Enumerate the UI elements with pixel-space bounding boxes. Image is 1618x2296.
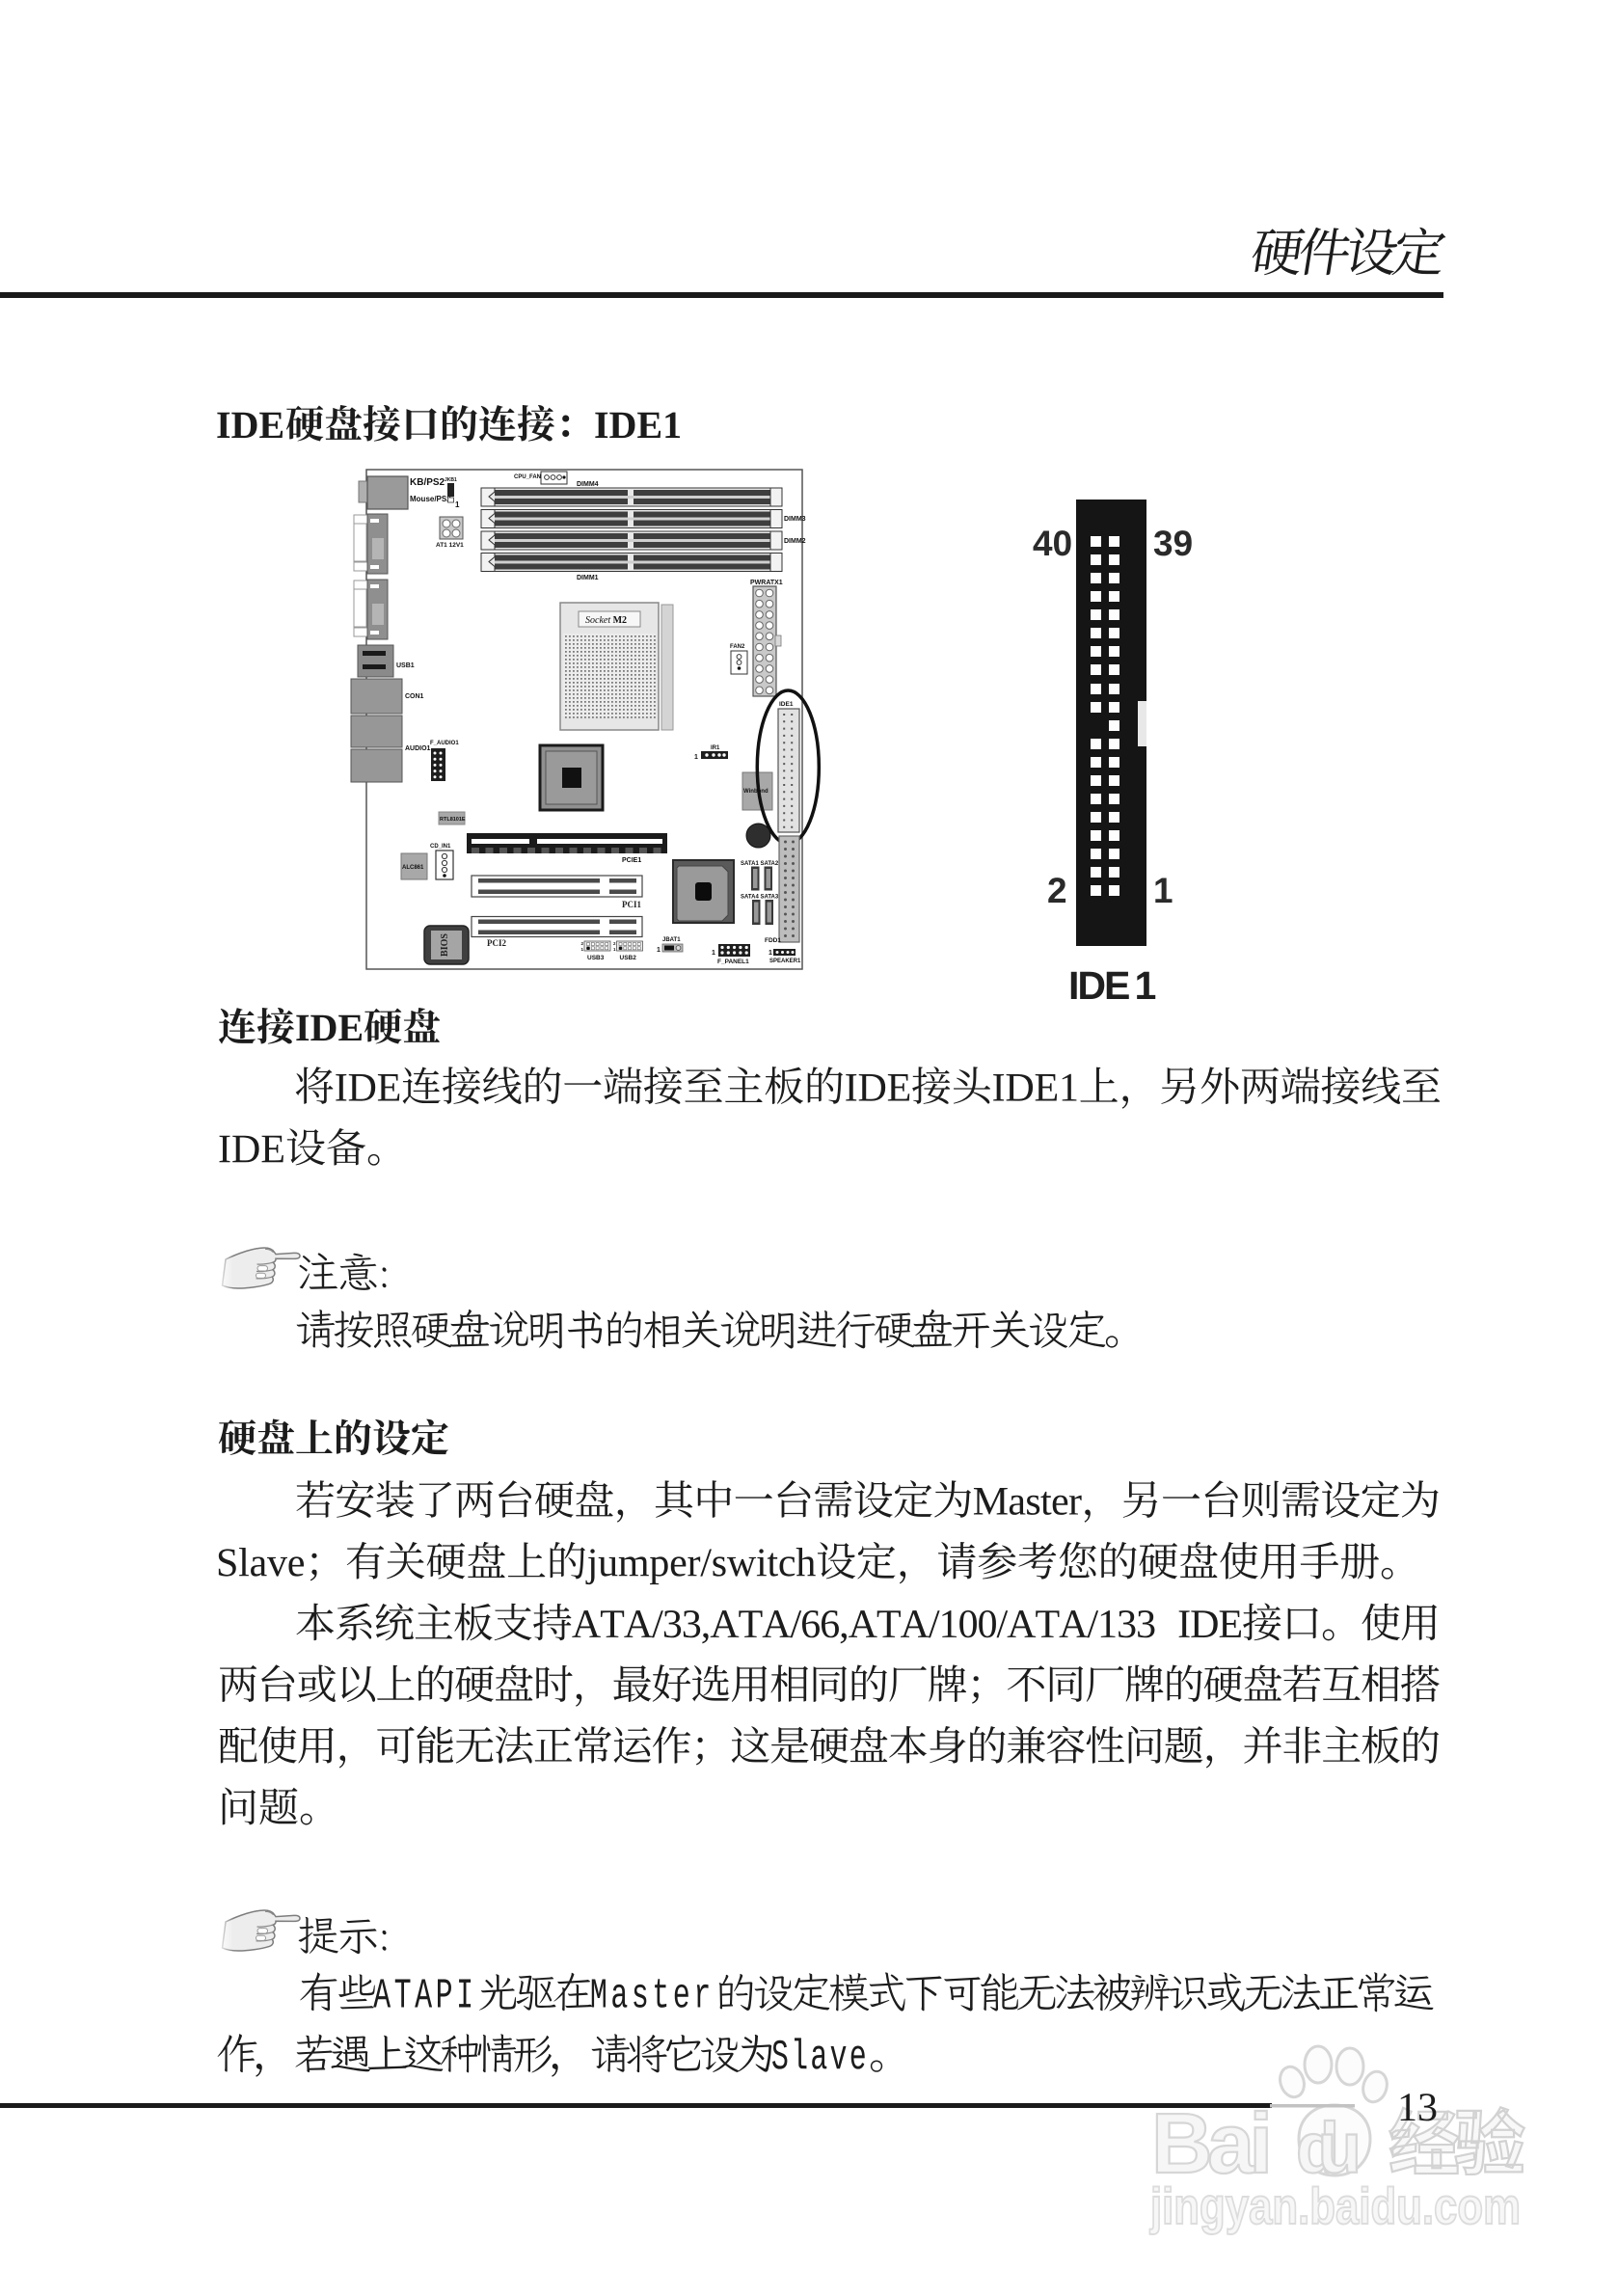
svg-text:JBAT1: JBAT1 [662, 937, 681, 943]
svg-text:AUDIO1: AUDIO1 [405, 745, 431, 752]
svg-text:DIMM4: DIMM4 [577, 481, 599, 488]
svg-text:PCI2: PCI2 [487, 938, 506, 948]
svg-text:SPEAKER1: SPEAKER1 [769, 959, 801, 964]
svg-text:AT1 12V1: AT1 12V1 [436, 542, 464, 549]
svg-text:IR1: IR1 [711, 745, 720, 751]
svg-text:Mouse/PS2: Mouse/PS2 [410, 495, 451, 503]
svg-text:FDD1: FDD1 [765, 937, 781, 944]
svg-text:1: 1 [712, 950, 715, 957]
svg-text:du: du [1296, 2108, 1362, 2188]
svg-text:FAN2: FAN2 [730, 644, 745, 650]
svg-text:SATA1 SATA2: SATA1 SATA2 [741, 861, 779, 867]
svg-text:DIMM3: DIMM3 [784, 516, 806, 523]
svg-text:Socket M2: Socket M2 [585, 615, 627, 626]
svg-text:USB1: USB1 [396, 662, 415, 669]
svg-text:CPU_FAN1: CPU_FAN1 [514, 474, 545, 480]
svg-text:Bai: Bai [1151, 2095, 1273, 2191]
svg-text:CD_IN1: CD_IN1 [430, 844, 451, 850]
svg-text:ALC861: ALC861 [402, 865, 424, 871]
svg-text:USB3: USB3 [587, 955, 605, 961]
svg-text:KB/PS2: KB/PS2 [410, 477, 445, 488]
svg-text:PCI1: PCI1 [622, 900, 641, 909]
svg-text:PWRATX1: PWRATX1 [750, 580, 783, 586]
svg-text:Winbond: Winbond [743, 789, 769, 795]
svg-text:PCIE1: PCIE1 [622, 857, 641, 864]
svg-text:BIOS: BIOS [440, 933, 450, 957]
svg-text:USB2: USB2 [620, 955, 637, 961]
svg-text:CON1: CON1 [405, 693, 424, 700]
svg-text:1: 1 [657, 947, 661, 954]
svg-text:JKB1: JKB1 [445, 477, 457, 483]
svg-text:1: 1 [694, 754, 698, 761]
svg-text:F_PANEL1: F_PANEL1 [717, 959, 749, 965]
svg-text:IDE1: IDE1 [779, 701, 794, 708]
svg-text:RTL8101E: RTL8101E [440, 817, 466, 823]
svg-text:F_AUDIO1: F_AUDIO1 [430, 741, 459, 746]
svg-text:DIMM1: DIMM1 [577, 575, 599, 581]
svg-text:DIMM2: DIMM2 [784, 538, 806, 545]
svg-text:1: 1 [769, 950, 772, 957]
svg-text:1: 1 [455, 500, 460, 509]
svg-text:jingyan.baidu.com: jingyan.baidu.com [1149, 2178, 1521, 2235]
svg-text:SATA4 SATA3: SATA4 SATA3 [741, 895, 779, 901]
